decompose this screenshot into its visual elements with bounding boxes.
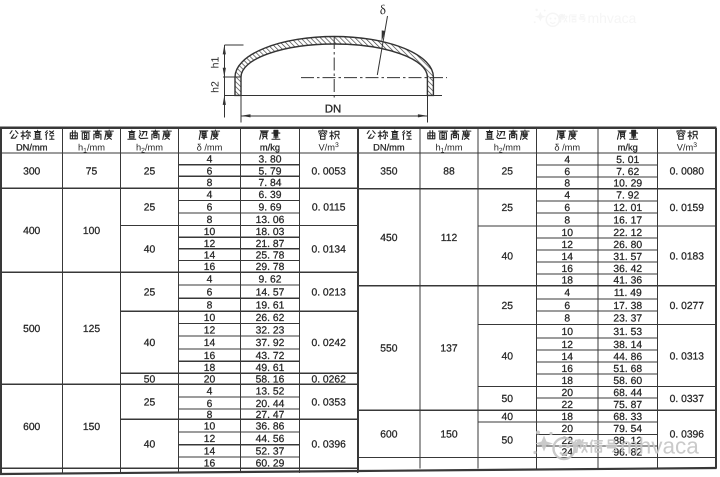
svg-text:6: 6 [564,203,570,214]
svg-text:5. 01: 5. 01 [616,155,639,166]
svg-text:52. 37: 52. 37 [256,447,285,458]
svg-text:88: 88 [443,167,455,178]
svg-text:9. 69: 9. 69 [259,203,282,214]
svg-text:40: 40 [502,252,514,263]
svg-text:18: 18 [562,412,574,423]
svg-text:mhvaca: mhvaca [587,10,636,26]
svg-text:h1: h1 [210,57,222,69]
svg-text:25: 25 [144,166,156,177]
svg-text:50: 50 [502,394,514,405]
svg-text:400: 400 [23,226,40,237]
svg-text:6: 6 [207,203,213,214]
svg-text:5. 79: 5. 79 [259,166,282,177]
svg-text:10: 10 [204,313,216,324]
svg-text:δ /mm: δ /mm [197,143,223,153]
svg-text:32. 23: 32. 23 [256,325,285,336]
svg-text:22: 22 [562,400,574,411]
svg-text:6: 6 [207,166,213,177]
svg-text:112: 112 [441,233,458,244]
svg-text:8: 8 [207,300,213,311]
svg-text:12: 12 [204,239,216,250]
svg-text:12: 12 [562,340,574,351]
svg-text:9. 62: 9. 62 [259,274,282,285]
svg-text:7. 92: 7. 92 [616,191,639,202]
svg-text:16: 16 [562,264,574,275]
svg-text:m/kg: m/kg [260,143,280,153]
svg-text:7. 62: 7. 62 [616,167,639,178]
svg-text:25: 25 [502,203,514,214]
svg-text:40: 40 [144,245,156,256]
svg-text:13. 52: 13. 52 [256,386,285,397]
svg-text:m/kg: m/kg [618,143,638,153]
svg-text:51. 68: 51. 68 [613,364,642,375]
svg-text:17. 38: 17. 38 [613,301,642,312]
svg-text:300: 300 [23,166,40,177]
svg-text:25: 25 [144,287,156,298]
svg-text:11. 49: 11. 49 [614,288,642,299]
svg-text:26. 62: 26. 62 [256,313,285,324]
svg-text:40: 40 [144,338,156,349]
svg-text:DN: DN [325,104,342,116]
svg-text:12: 12 [562,240,574,251]
svg-text:DN/mm: DN/mm [373,143,405,153]
svg-text:4: 4 [564,288,570,299]
svg-text:37. 92: 37. 92 [256,338,285,349]
svg-text:0. 0134: 0. 0134 [311,245,346,256]
svg-text:h2: h2 [210,81,222,93]
svg-text:0. 0353: 0. 0353 [311,398,346,409]
svg-text:0. 0313: 0. 0313 [670,351,705,362]
svg-text:8: 8 [564,215,570,226]
svg-text:75: 75 [86,166,98,177]
svg-text:18: 18 [562,376,574,387]
svg-text:0. 0053: 0. 0053 [311,166,346,177]
svg-text:125: 125 [83,324,100,335]
svg-text:600: 600 [380,430,397,441]
svg-text:0. 0183: 0. 0183 [670,252,705,263]
svg-text:10: 10 [204,421,216,432]
svg-text:40: 40 [144,440,156,451]
svg-text:38. 14: 38. 14 [613,340,642,351]
svg-text:8: 8 [564,314,570,325]
svg-text:0. 0080: 0. 0080 [670,167,705,178]
svg-text:36. 42: 36. 42 [613,264,642,275]
svg-text:20. 44: 20. 44 [256,399,285,410]
svg-text:22. 12: 22. 12 [613,228,642,239]
svg-text:10: 10 [562,327,574,338]
svg-text:44. 56: 44. 56 [256,434,285,445]
svg-text:14: 14 [204,250,216,261]
svg-text:350: 350 [380,167,397,178]
svg-text:14: 14 [562,352,574,363]
svg-text:3. 80: 3. 80 [259,155,282,166]
svg-text:0. 0337: 0. 0337 [670,394,705,405]
svg-text:0. 0159: 0. 0159 [670,203,705,214]
svg-text:19. 61: 19. 61 [256,300,285,311]
svg-text:25: 25 [144,398,156,409]
svg-text:0. 0115: 0. 0115 [312,203,346,214]
svg-text:40: 40 [502,351,514,362]
svg-text:10: 10 [204,227,216,238]
svg-text:23. 37: 23. 37 [613,314,642,325]
svg-text:0. 0213: 0. 0213 [311,287,346,298]
svg-text:25. 78: 25. 78 [256,250,285,261]
svg-text:13. 06: 13. 06 [256,215,285,226]
svg-text:600: 600 [23,422,40,433]
svg-text:6: 6 [207,399,213,410]
svg-text:31. 57: 31. 57 [613,252,642,263]
svg-text:49. 61: 49. 61 [256,363,285,374]
svg-text:500: 500 [23,324,40,335]
svg-text:26. 80: 26. 80 [613,240,642,251]
svg-text:14: 14 [562,252,574,263]
svg-text:16. 17: 16. 17 [613,215,642,226]
svg-text:43. 72: 43. 72 [256,351,285,362]
svg-text:40: 40 [502,412,514,423]
svg-text:550: 550 [380,344,397,355]
svg-text:450: 450 [380,233,397,244]
svg-text:18. 03: 18. 03 [256,227,285,238]
svg-text:25: 25 [502,301,514,312]
svg-text:4: 4 [207,274,213,285]
svg-text:6: 6 [207,287,213,298]
svg-text:0. 0242: 0. 0242 [311,338,346,349]
svg-text:25: 25 [144,203,156,214]
svg-text:10: 10 [562,228,574,239]
svg-text:21. 87: 21. 87 [256,239,285,250]
svg-text:mhvaca: mhvaca [620,434,699,459]
svg-text:36. 86: 36. 86 [256,421,285,432]
svg-text:14. 57: 14. 57 [256,287,285,298]
svg-text:68. 33: 68. 33 [613,412,642,423]
svg-text:12. 01: 12. 01 [613,203,642,214]
svg-text:150: 150 [83,422,100,433]
svg-text:16: 16 [562,364,574,375]
svg-text:137: 137 [440,344,457,355]
svg-text:4: 4 [207,155,213,166]
svg-text:16: 16 [204,351,216,362]
svg-text:4: 4 [564,155,570,166]
svg-text:14: 14 [204,447,216,458]
svg-text:0. 0396: 0. 0396 [311,440,346,451]
svg-text:8: 8 [207,215,213,226]
svg-text:4: 4 [564,191,570,202]
svg-text:4: 4 [207,386,213,397]
svg-text:6: 6 [564,301,570,312]
svg-text:100: 100 [83,226,100,237]
svg-text:DN/mm: DN/mm [16,143,48,153]
svg-text:50: 50 [502,436,514,447]
svg-text:20: 20 [562,424,574,435]
svg-text:14: 14 [204,338,216,349]
svg-text:44. 86: 44. 86 [613,352,642,363]
svg-text:18: 18 [204,363,216,374]
svg-text:25: 25 [502,167,514,178]
svg-text:δ /mm: δ /mm [554,143,580,153]
svg-text:0. 0277: 0. 0277 [670,301,705,312]
svg-text:4: 4 [207,190,213,201]
svg-text:12: 12 [204,434,216,445]
svg-text:58. 60: 58. 60 [613,376,642,387]
svg-text:75. 87: 75. 87 [613,400,642,411]
svg-text:6. 39: 6. 39 [259,190,282,201]
svg-text:6: 6 [564,167,570,178]
svg-text:12: 12 [204,325,216,336]
svg-text:31. 53: 31. 53 [613,327,642,338]
svg-text:150: 150 [440,430,457,441]
